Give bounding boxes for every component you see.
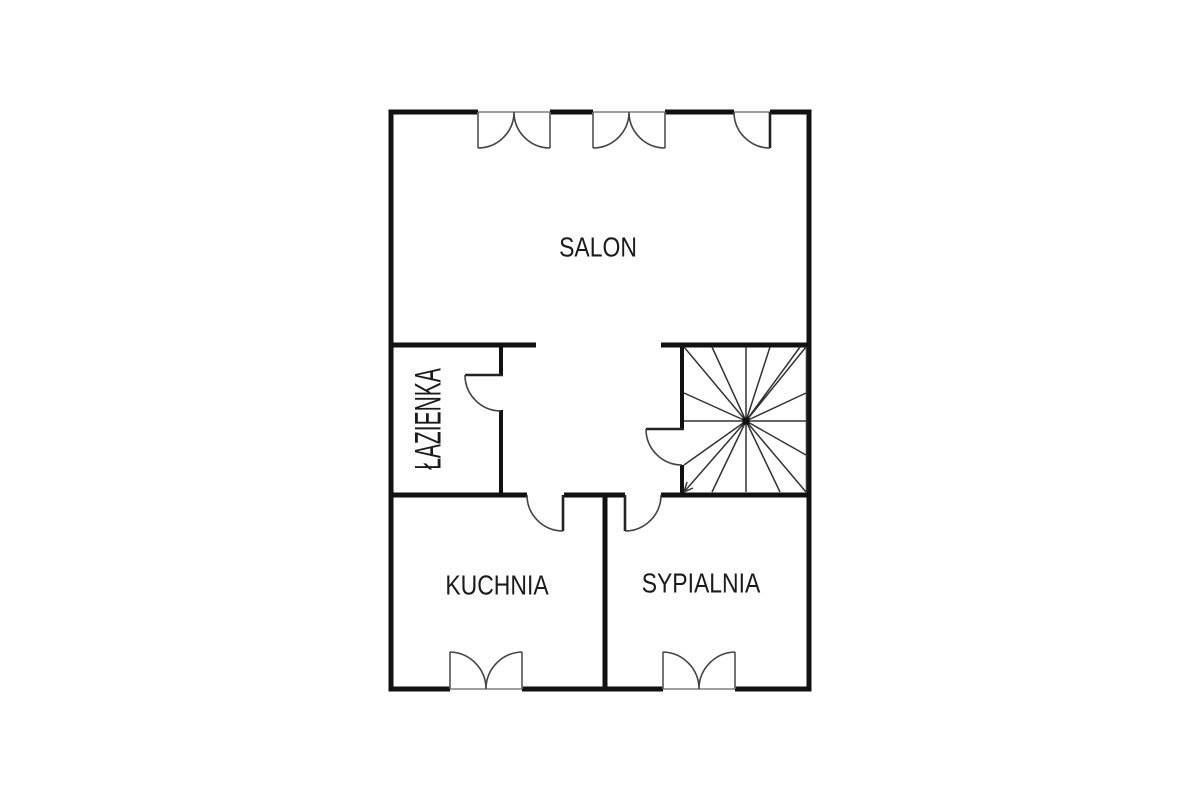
salon-window-center-arcs (593, 112, 665, 148)
opening-sill-lines (450, 112, 770, 689)
swing-arcs (450, 112, 770, 689)
salon-label: SALON (559, 233, 637, 264)
staircase-door-arc (646, 429, 682, 465)
floor-plan-drawing: SALON ŁAZIENKA KUCHNIA SYPIALNIA (0, 0, 1200, 800)
floor-plan-page: SALON ŁAZIENKA KUCHNIA SYPIALNIA (0, 0, 1200, 800)
bathroom-door-arc (465, 375, 501, 411)
bedroom-window-arcs (663, 652, 735, 689)
exterior-walls (389, 110, 811, 692)
window-jambs (450, 112, 735, 689)
partition-walls (501, 345, 682, 495)
kitchen-door-arc (527, 495, 563, 531)
room-labels: SALON ŁAZIENKA KUCHNIA SYPIALNIA (409, 233, 761, 602)
bedroom-door-arc (625, 495, 661, 531)
kitchen-window-arcs (450, 652, 522, 689)
salon-window-left-arcs (478, 112, 550, 148)
entry-door-arc (734, 112, 770, 148)
sill-lines (450, 112, 770, 689)
staircase-newel-post (743, 418, 750, 425)
sypialnia-label: SYPIALNIA (642, 569, 761, 600)
lazienka-label: ŁAZIENKA (409, 368, 450, 469)
interior-walls (389, 345, 811, 689)
spiral-staircase (684, 347, 807, 492)
kuchnia-label: KUCHNIA (445, 571, 549, 602)
